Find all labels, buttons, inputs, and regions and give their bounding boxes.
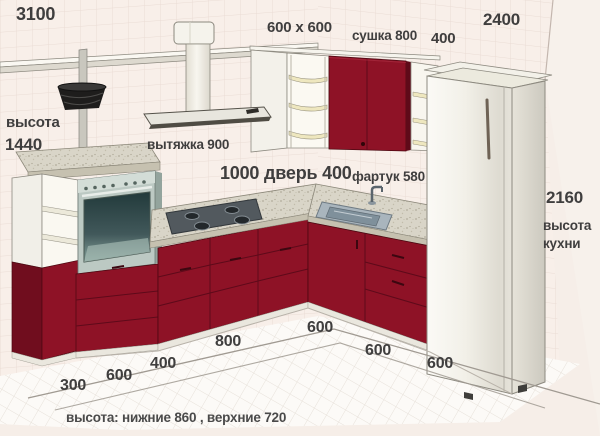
dim-door-run: 1000 дверь 400 [220, 164, 352, 182]
dim-corner-unit: 600 x 600 [267, 20, 332, 35]
dim-kitchen-height-word2: кухни [543, 237, 580, 251]
fridge-handle [487, 100, 489, 158]
corner-carousel-shelves [287, 53, 329, 148]
dim-floor-600-corner: 600 [307, 320, 333, 336]
hood-duct [186, 44, 210, 112]
dim-floor-400: 400 [150, 356, 176, 372]
hood-cap [174, 22, 214, 44]
kitchen-illustration [0, 0, 600, 436]
dim-floor-600-right1: 600 [365, 343, 391, 359]
oven-base-drawers [76, 264, 158, 358]
corner-shelf-unit [12, 174, 78, 268]
dim-right-wall-width: 2400 [483, 11, 520, 28]
upper-end-panel [251, 50, 287, 152]
dryer-cabinet [329, 56, 411, 151]
dim-dryer: сушка 800 [352, 29, 417, 43]
fridge [424, 62, 552, 400]
dim-floor-800: 800 [215, 334, 241, 350]
dim-kitchen-height-value: 2160 [546, 189, 583, 206]
dim-kitchen-height-word1: высота [543, 219, 591, 233]
dim-apron: фартук 580 [352, 170, 425, 184]
dim-floor-600-left: 600 [106, 368, 132, 384]
upper-cabinets [250, 46, 440, 152]
oven [78, 171, 162, 274]
dim-wall-top-width: 3100 [16, 5, 55, 23]
corner-base-cabinet [12, 260, 80, 366]
fridge-door [427, 76, 512, 394]
dim-floor-300: 300 [60, 378, 86, 394]
dim-bar-height-value: 1440 [5, 136, 42, 153]
dim-hood: вытяжка 900 [147, 138, 229, 152]
wire-basket [58, 83, 106, 110]
kitchen-diagram: 3100 600 x 600 сушка 800 400 2400 высота… [0, 0, 600, 436]
dim-floor-600-right2: 600 [427, 356, 453, 372]
dim-shelf-unit-width: 400 [431, 31, 455, 46]
dim-bar-height-label: высота [6, 115, 60, 130]
footer-caption: высота: нижние 860 , верхние 720 [66, 411, 286, 425]
fridge-side [512, 81, 545, 394]
